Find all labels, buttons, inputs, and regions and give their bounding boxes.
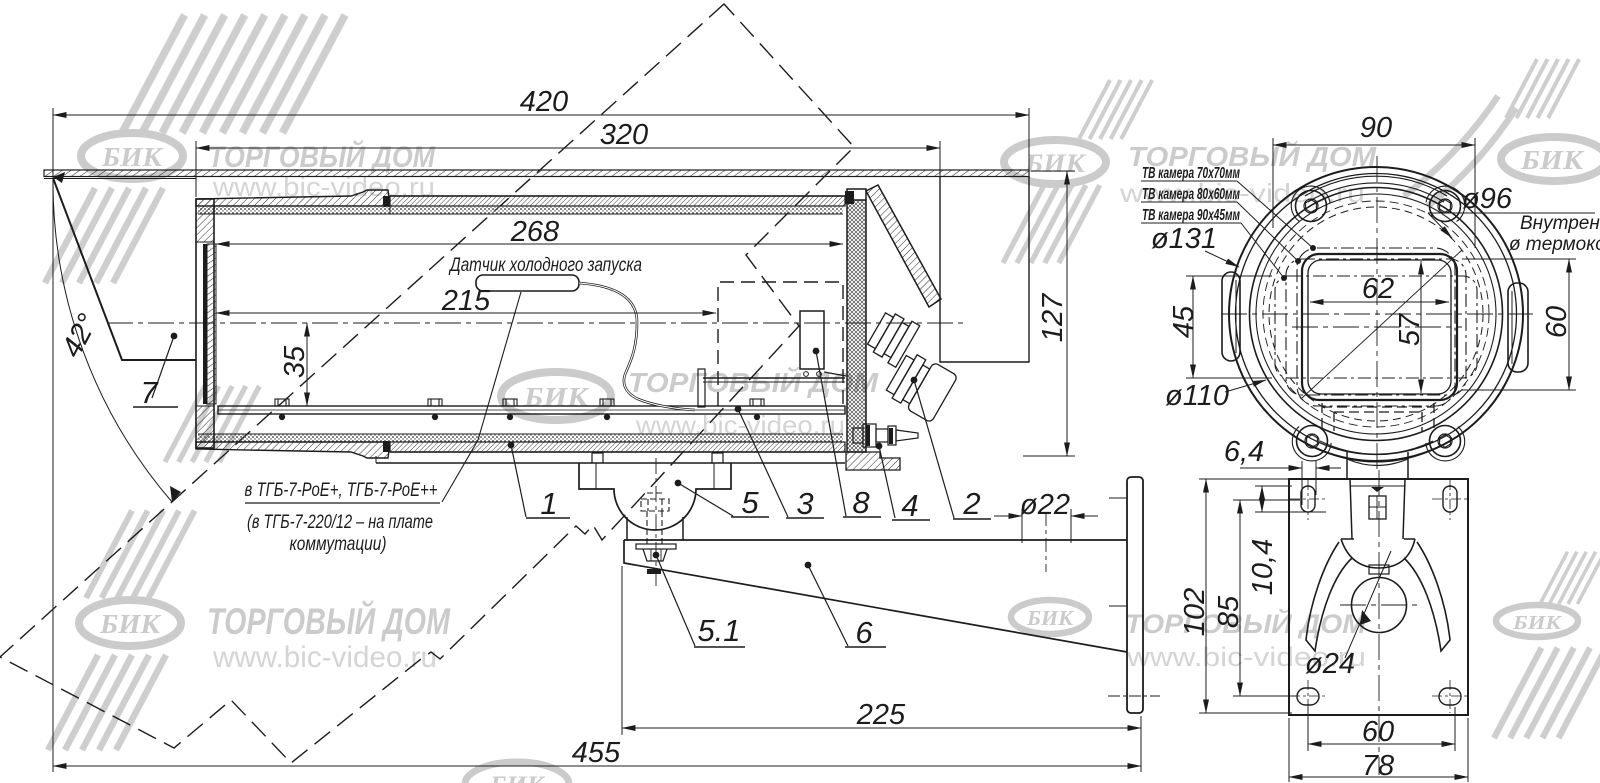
svg-text:78: 78 — [1362, 750, 1394, 782]
svg-text:ТВ камера 90х45мм: ТВ камера 90х45мм — [1142, 207, 1240, 224]
svg-text:420: 420 — [520, 86, 568, 118]
svg-text:БИК: БИК — [489, 771, 546, 783]
svg-text:6,4: 6,4 — [1224, 436, 1264, 468]
svg-text:БИК: БИК — [523, 382, 590, 412]
svg-text:(в ТГБ-7-220/12 – на плате: (в ТГБ-7-220/12 – на плате — [247, 512, 433, 533]
svg-text:60: 60 — [1541, 306, 1573, 338]
svg-text:www.bic-video.ru: www.bic-video.ru — [212, 641, 437, 674]
svg-text:1: 1 — [540, 486, 557, 521]
svg-text:ТОРГОВЫЙ ДОМ: ТОРГОВЫЙ ДОМ — [1125, 607, 1367, 639]
svg-text:ø22: ø22 — [1020, 489, 1070, 521]
svg-text:ТОРГОВЫЙ ДОМ: ТОРГОВЫЙ ДОМ — [208, 139, 436, 174]
svg-text:БИК: БИК — [101, 142, 164, 172]
svg-text:ТВ камера 80х60мм: ТВ камера 80х60мм — [1142, 186, 1240, 203]
svg-text:БИК: БИК — [1520, 145, 1585, 175]
svg-text:5.1: 5.1 — [697, 613, 740, 648]
svg-text:ø96: ø96 — [1462, 183, 1513, 215]
svg-text:127: 127 — [1037, 292, 1069, 342]
svg-text:коммутации): коммутации) — [290, 534, 387, 555]
svg-text:102: 102 — [1179, 588, 1211, 636]
svg-text:ø термокожуха: ø термокожуха — [1509, 234, 1600, 255]
svg-text:Датчик холодного запуска: Датчик холодного запуска — [448, 255, 642, 276]
svg-text:ø131: ø131 — [1151, 223, 1217, 255]
svg-text:ø110: ø110 — [1165, 380, 1229, 412]
svg-text:3: 3 — [796, 486, 813, 521]
svg-text:90: 90 — [1360, 112, 1392, 144]
svg-text:7: 7 — [140, 375, 159, 410]
svg-text:10,4: 10,4 — [1247, 539, 1279, 595]
svg-text:8: 8 — [852, 485, 870, 520]
svg-text:85: 85 — [1213, 595, 1245, 628]
svg-text:45: 45 — [1168, 305, 1200, 338]
svg-text:в ТГБ-7-РоЕ+, ТГБ-7-РоЕ++: в ТГБ-7-РоЕ+, ТГБ-7-РоЕ++ — [245, 480, 438, 501]
svg-text:ТВ камера 70х70мм: ТВ камера 70х70мм — [1142, 165, 1240, 182]
svg-text:320: 320 — [600, 119, 648, 151]
svg-text:62: 62 — [1362, 273, 1394, 305]
svg-text:225: 225 — [856, 699, 906, 731]
svg-text:57: 57 — [1394, 312, 1426, 346]
svg-text:БИК: БИК — [1024, 149, 1087, 178]
svg-text:268: 268 — [510, 216, 559, 248]
svg-text:2: 2 — [962, 486, 980, 521]
svg-text:455: 455 — [572, 737, 621, 769]
svg-text:35: 35 — [279, 345, 311, 378]
svg-text:БИК: БИК — [1026, 606, 1075, 630]
svg-text:БИК: БИК — [99, 609, 162, 639]
svg-text:5: 5 — [741, 485, 759, 520]
svg-text:60: 60 — [1362, 716, 1394, 748]
svg-text:Внутренний: Внутренний — [1520, 213, 1600, 234]
svg-text:215: 215 — [441, 285, 491, 317]
svg-text:БИК: БИК — [1512, 612, 1563, 634]
svg-text:ТОРГОВЫЙ ДОМ: ТОРГОВЫЙ ДОМ — [207, 600, 451, 642]
svg-text:4: 4 — [901, 488, 918, 523]
svg-text:6: 6 — [855, 615, 873, 650]
